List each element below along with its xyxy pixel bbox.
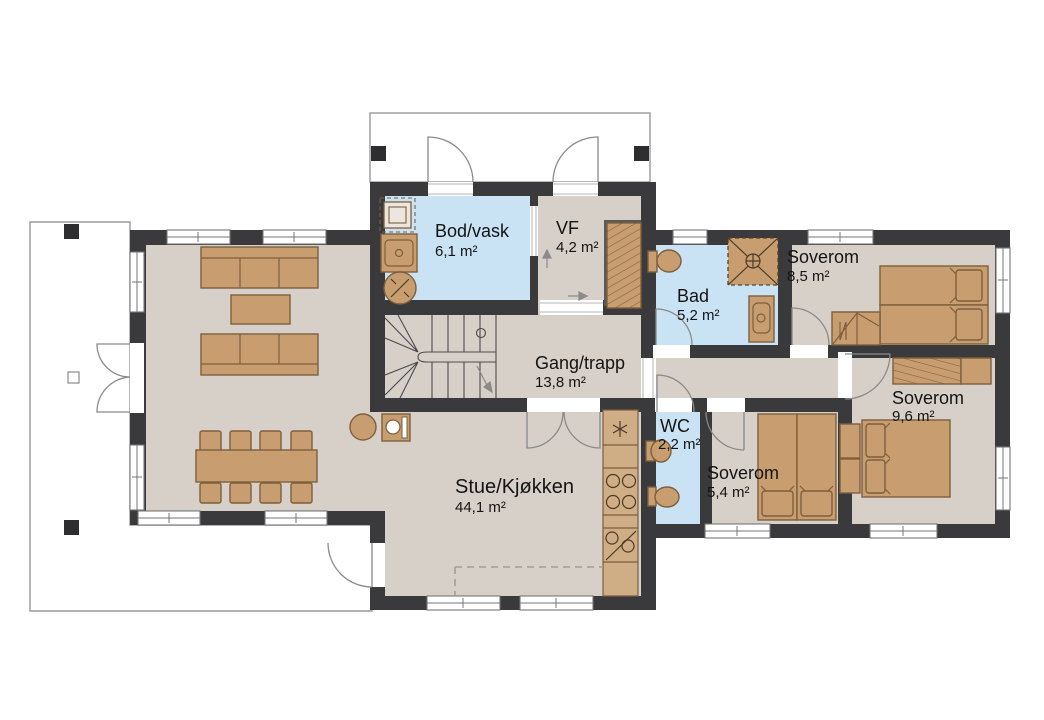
room-label-bodvask: Bod/vask: [435, 221, 510, 241]
water-heater: [384, 272, 416, 304]
room-area-vf: 4,2 m²: [556, 239, 599, 256]
wc-toilet: [648, 487, 679, 507]
bad-vanity: [749, 296, 774, 342]
room-area-gang: 13,8 m²: [535, 374, 586, 391]
shower: [728, 238, 778, 285]
room-area-bodvask: 6,1 m²: [435, 243, 478, 260]
window: [167, 230, 230, 244]
room-label-gang: Gang/trapp: [535, 353, 625, 373]
coffee-table: [231, 295, 290, 324]
floor-plan-page: Bod/vask 6,1 m² VF 4,2 m² Bad 5,2 m² Sov…: [0, 0, 1044, 720]
room-label-soverom-85: Soverom: [787, 247, 859, 267]
washing-machine: [380, 198, 415, 232]
porch-post-left: [371, 146, 386, 161]
window: [130, 445, 144, 510]
room-area-soverom-54: 5,4 m²: [707, 484, 750, 501]
kitchen-counter: [603, 410, 638, 596]
terrace-post-bottom: [64, 520, 79, 535]
entry-porch: [370, 113, 650, 182]
round-table: [350, 414, 376, 440]
window: [263, 230, 326, 244]
room-label-wc: WC: [660, 416, 690, 436]
utility-sink: [381, 234, 417, 272]
soverom-85-wardrobe: [832, 312, 880, 345]
room-area-wc: 2,2 m²: [658, 436, 701, 453]
vf-closet: [607, 223, 641, 308]
room-label-bad: Bad: [677, 286, 709, 306]
soverom-96-wardrobe: [893, 358, 991, 384]
room-label-stue: Stue/Kjøkken: [455, 476, 574, 498]
floor-plan-drawing: Bod/vask 6,1 m² VF 4,2 m² Bad 5,2 m² Sov…: [0, 0, 1044, 720]
window: [808, 230, 873, 244]
window: [870, 524, 937, 538]
room-label-vf: VF: [556, 218, 579, 238]
terrace-marker: [68, 372, 79, 383]
window: [673, 230, 707, 244]
terrace-post-top: [64, 224, 79, 239]
room-area-bad: 5,2 m²: [677, 307, 720, 324]
window: [138, 511, 200, 525]
room-area-stue: 44,1 m²: [455, 499, 506, 516]
room-label-soverom-96: Soverom: [892, 388, 964, 408]
sofa-top: [201, 247, 318, 288]
sofa-bottom: [201, 334, 318, 375]
window: [130, 252, 144, 312]
porch-post-right: [634, 146, 649, 161]
window: [520, 596, 593, 610]
room-label-soverom-54: Soverom: [707, 463, 779, 483]
window: [427, 596, 500, 610]
soverom-85-beds: [880, 266, 988, 344]
window: [996, 248, 1010, 313]
window: [996, 447, 1010, 510]
window: [265, 511, 327, 525]
bad-toilet: [648, 250, 681, 272]
room-area-soverom-85: 8,5 m²: [787, 268, 830, 285]
wood-stove: [382, 414, 410, 441]
soverom-96-bed: [840, 420, 950, 497]
window: [705, 524, 770, 538]
room-area-soverom-96: 9,6 m²: [892, 408, 935, 425]
